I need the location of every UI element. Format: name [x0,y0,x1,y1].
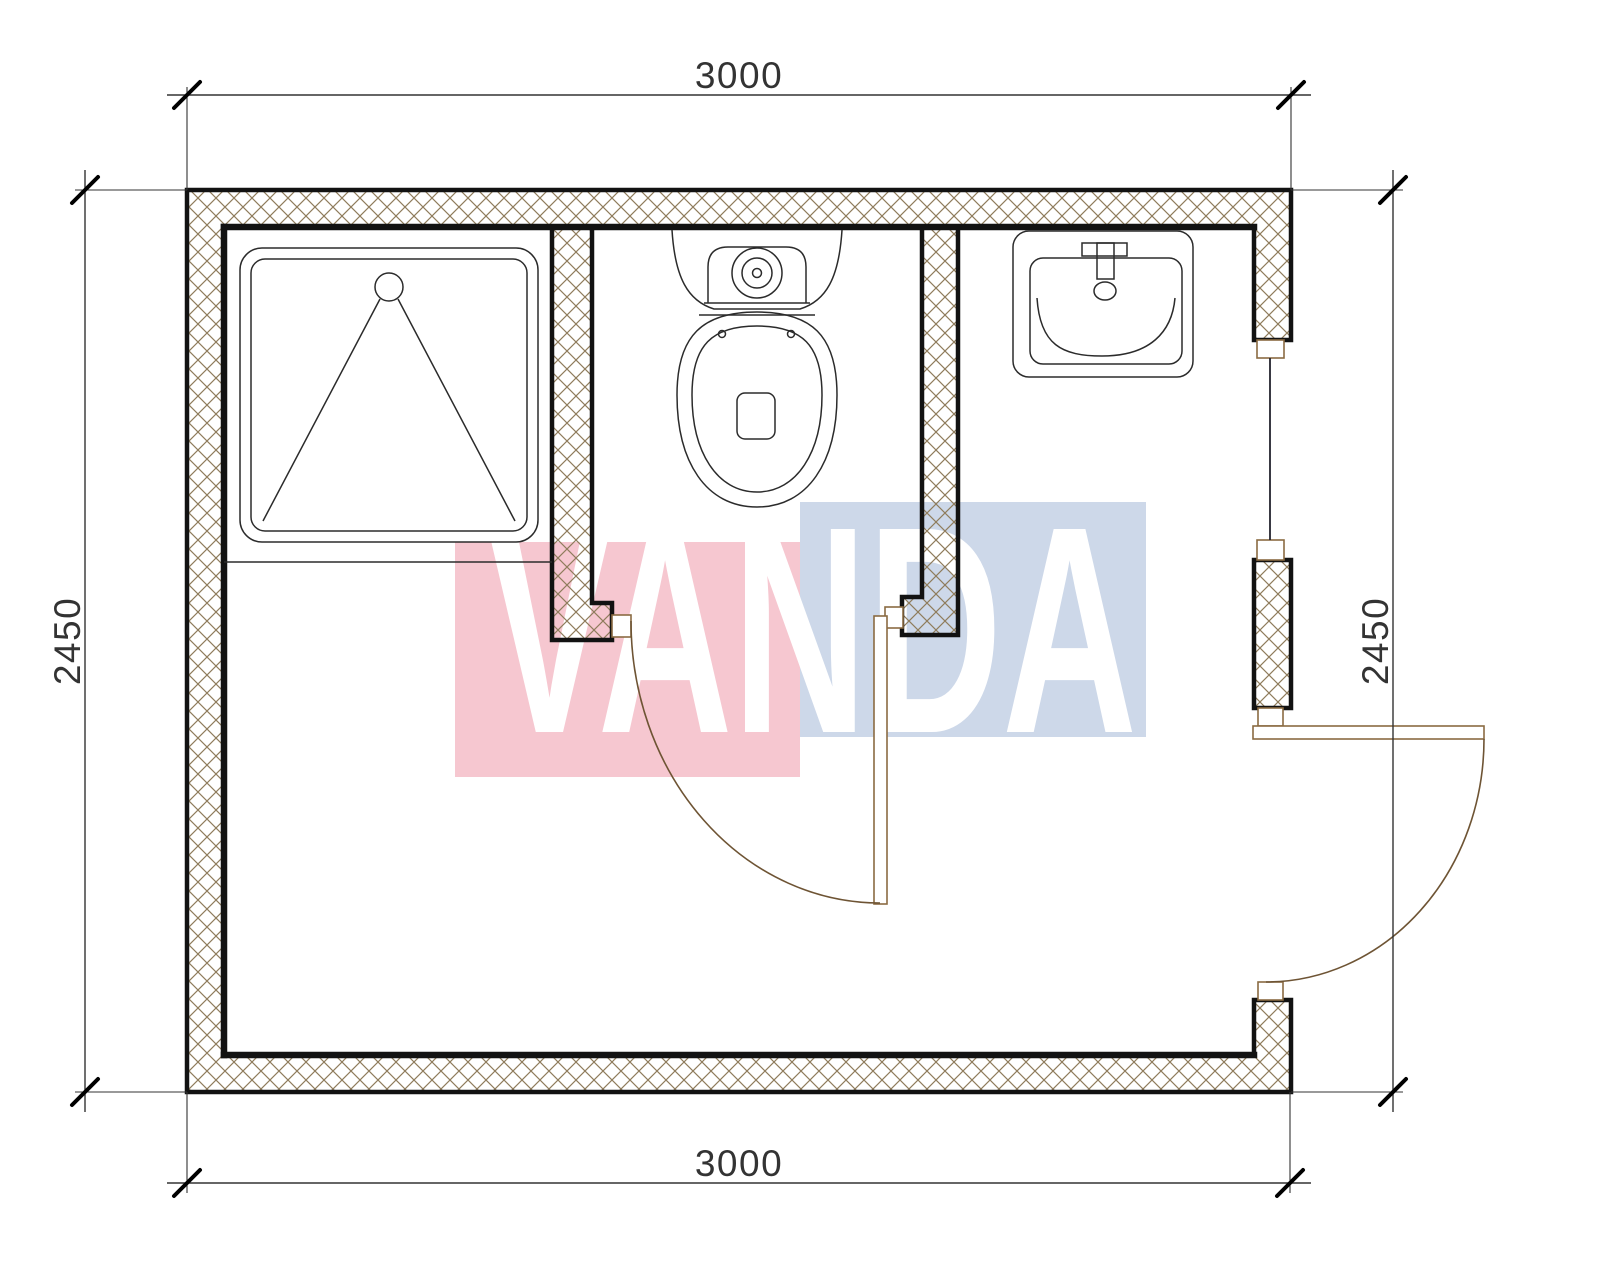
dim-label-right: 2450 [1355,597,1396,685]
toilet-cistern-lid [708,247,806,303]
window-frame-top [1257,340,1284,358]
toilet-flush-button-mid [742,258,772,288]
entry-door-leaf [1253,726,1484,739]
entry-door [1253,708,1484,1000]
dim-label-bottom: 3000 [695,1143,783,1184]
entry-door-frame-bottom [1258,982,1283,1000]
entry-door-frame-top [1258,708,1283,726]
washbasin-drain [1094,282,1116,300]
toilet-cistern-sides [672,230,842,309]
washbasin-tap-stem [1097,243,1114,279]
washbasin-tap-bar [1082,243,1127,256]
window-frame-bottom [1257,540,1284,560]
dim-label-top: 3000 [695,55,783,96]
floor-plan-drawing: VANDA [0,0,1600,1280]
extension-lines-left [75,190,187,1092]
washbasin-inner [1030,258,1182,364]
washbasin-bowl-curve [1037,298,1175,356]
toilet-flush-button-outer [732,248,782,298]
toilet-drain [737,393,775,439]
shower-drain-icon [375,273,403,301]
extension-lines-top [187,87,1291,190]
washbasin-icon [1013,231,1193,377]
toilet-door-frame-left [612,615,631,637]
shower-tray-slope-lines [263,299,515,521]
toilet-flush-button-inner [753,269,762,278]
washbasin [1013,231,1193,377]
entry-door-swing-icon [1266,739,1484,982]
dim-label-left: 2450 [47,597,88,685]
toilet-door-leaf [874,616,887,904]
shower-tray-inner [251,259,527,531]
floor-plan-page: VANDA [0,0,1600,1280]
window [1257,340,1284,560]
right-wall-pier [1254,560,1291,708]
